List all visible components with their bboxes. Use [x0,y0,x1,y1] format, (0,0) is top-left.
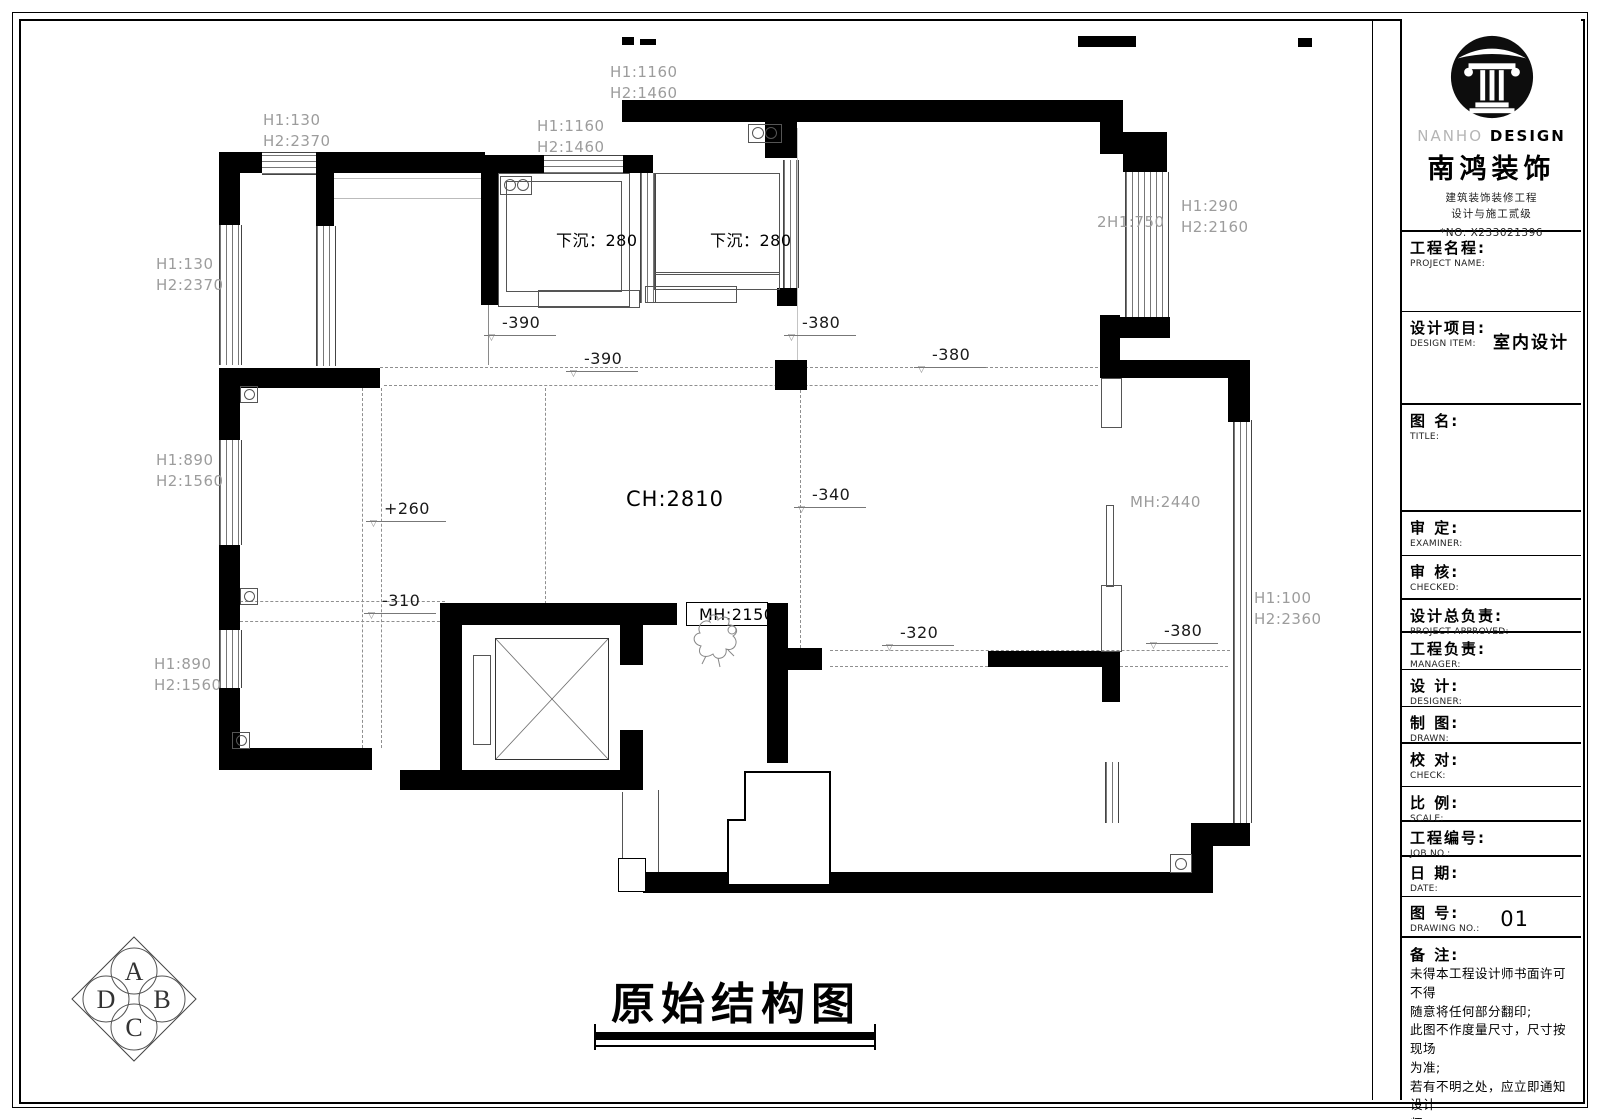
field-value: 室内设计 [1493,328,1569,353]
plan-label: H1:890 H2:1560 [154,654,222,696]
title-block: NANHO DESIGN 南鸿装饰 建筑装饰装修工程设计与施工贰级 *NO: X… [1400,19,1581,1100]
fixture-outline [1101,378,1122,428]
wall [1123,132,1167,172]
floor-plan: H1:1160 H2:1460H1:1160 H2:1460H1:130 H2:… [0,0,1600,1119]
company-name: 南鸿装饰 [1402,147,1581,186]
title-underline-thin [594,1045,876,1047]
notes-label: 备 注: [1410,944,1573,965]
field-label-en: DRAWN: [1410,734,1573,744]
titleblock-field: 比 例:SCALE: [1402,787,1581,822]
titleblock-fields: 工程名程:PROJECT NAME:设计项目:DESIGN ITEM:室内设计图… [1402,232,1581,938]
field-label-en: TITLE: [1410,432,1573,442]
certification-text: 建筑装饰装修工程设计与施工贰级 [1402,191,1581,223]
plan-label: MH:2440 [1130,492,1201,513]
level-annotation: -380 [914,344,986,368]
reference-line [658,790,659,872]
field-label-en: CHECK: [1410,771,1573,781]
plan-label: 下沉：280 [710,230,792,252]
level-annotation: -310 [364,590,436,614]
titleblock-field: 设计总负责:PROJECT APPROVED: [1402,600,1581,633]
title-underline-thick [594,1032,876,1040]
wall [622,37,634,45]
compass-letter-d: D [97,985,116,1014]
wall [219,152,262,173]
field-label-cn: 审 定: [1410,517,1573,538]
wall [1100,122,1123,154]
note-line: 若有不明之处，应立即通知设计 [1410,1078,1573,1116]
reference-line [334,198,483,199]
field-label-cn: 制 图: [1410,712,1573,733]
field-label-cn: 工程名程: [1410,237,1573,258]
wall [767,603,788,763]
titleblock-field: 图 名:TITLE: [1402,405,1581,512]
wall [988,651,1120,667]
field-label-en: CHECKED: [1410,583,1573,593]
field-label-cn: 审 核: [1410,561,1573,582]
wall [219,173,240,225]
wall [1191,846,1213,893]
drawing-title: 原始结构图 [595,968,877,1032]
compass-letter-b: B [153,985,170,1014]
window-hatch [1125,172,1169,317]
plan-label: H1:290 H2:2160 [1181,196,1249,238]
reference-line [334,178,483,179]
level-annotation: -380 [784,312,856,336]
compass-letter-a: A [125,957,144,986]
notes-lines: 未得本工程设计师书面许可不得随意将任何部分翻印;此图不作度量尺寸，尺寸按现场为准… [1410,965,1573,1119]
level-annotation: +260 [366,498,446,522]
wall [640,39,656,45]
compass-letter-c: C [125,1013,142,1042]
wall [620,730,643,790]
beam-dash-line [381,388,382,748]
field-label-cn: 设 计: [1410,675,1573,696]
titleblock-field: 工程名程:PROJECT NAME: [1402,232,1581,312]
window-hatch [1233,420,1252,823]
beam-dash-line [240,621,445,622]
wall [1298,38,1312,47]
door-frame [618,858,646,892]
level-annotation: -380 [1146,620,1218,644]
field-label-en: PROJECT NAME: [1410,259,1573,269]
field-label-en: DESIGNER: [1410,697,1573,707]
wall [777,288,797,306]
titleblock-field: 图 号:DRAWING NO.:01 [1402,897,1581,938]
beam-dash-line [362,388,363,748]
note-line: 为准; [1410,1059,1573,1078]
field-label-cn: 工程负责: [1410,638,1573,659]
plan-label: H1:890 H2:1560 [156,450,224,492]
field-label-cn: 图 名: [1410,410,1573,431]
wall [1100,360,1250,378]
wall [623,155,653,173]
field-value: 01 [1500,907,1529,931]
wall [1191,823,1250,846]
reference-line [622,792,623,858]
company-logo-block: NANHO DESIGN 南鸿装饰 建筑装饰装修工程设计与施工贰级 *NO: X… [1402,19,1581,232]
window-hatch [1105,762,1119,823]
beam-dash-line [545,388,546,604]
plan-label: 2H1:750 [1097,212,1165,233]
plan-label: H1:130 H2:2370 [156,254,224,296]
plan-label: H1:1160 H2:1460 [537,116,605,158]
level-annotation: -390 [566,348,638,372]
titleblock-field: 审 核:CHECKED: [1402,556,1581,600]
wall [481,157,499,305]
window-hatch [219,630,242,688]
note-line: 随意将任何部分翻印; [1410,1003,1573,1022]
plan-label: CH:2810 [626,485,724,514]
beam-dash-line [384,385,1098,386]
titleblock-field: 设 计:DESIGNER: [1402,670,1581,707]
note-line: 此图不作度量尺寸，尺寸按现场 [1410,1021,1573,1059]
wall [400,770,643,790]
fixture-outline [1106,505,1114,587]
titleblock-field: 设计项目:DESIGN ITEM:室内设计 [1402,312,1581,405]
titleblock-field: 工程负责:MANAGER: [1402,633,1581,670]
note-line: 未得本工程设计师书面许可不得 [1410,965,1573,1003]
notes-section: 备 注: 未得本工程设计师书面许可不得随意将任何部分翻印;此图不作度量尺寸，尺寸… [1402,938,1581,1119]
drain-circle-icon [244,389,255,400]
note-line: 师。 [1410,1115,1573,1119]
drain-circle-icon [752,127,764,139]
drawing-sheet: H1:1160 H2:1460H1:1160 H2:1460H1:130 H2:… [0,0,1600,1119]
field-label-cn: 工程编号: [1410,827,1573,848]
drain-circle-icon [1175,858,1187,870]
fixture-outline [645,286,737,303]
window-hatch [783,160,799,288]
wall [1102,651,1120,702]
window-hatch [316,226,336,366]
compass-symbol: A B C D [70,935,198,1063]
field-label-en: EXAMINER: [1410,539,1573,549]
field-label-cn: 比 例: [1410,792,1573,813]
wall [788,648,822,670]
wall [622,100,1123,122]
titleblock-field: 制 图:DRAWN: [1402,707,1581,744]
field-label-en: DATE: [1410,884,1573,894]
drain-circle-icon [517,179,529,191]
wall [219,748,372,770]
brand-name: NANHO DESIGN [1402,127,1581,145]
elevator-shaft [495,638,609,760]
beam-dash-line [380,367,1098,368]
plan-label: 下沉：280 [556,230,638,252]
field-label-cn: 设计总负责: [1410,605,1573,626]
field-label-en: DRAWING NO.: [1410,924,1573,934]
drain-circle-icon [244,591,255,602]
titleblock-field: 工程编号:JOB NO.: [1402,822,1581,857]
plan-label: H1:100 H2:2360 [1254,588,1322,630]
wall [1078,36,1136,47]
wall [316,152,485,173]
field-label-cn: 图 号: [1410,902,1573,923]
wall [440,603,462,770]
titleblock-field: 审 定:EXAMINER: [1402,512,1581,556]
wall [775,360,807,390]
plan-label: H1:1160 H2:1460 [610,62,678,104]
field-label-en: MANAGER: [1410,660,1573,670]
wall [620,603,643,665]
wall [219,368,380,388]
stairs-outline [727,771,831,886]
titleblock-field: 校 对:CHECK: [1402,744,1581,787]
titleblock-separator-line [1372,19,1373,1100]
wall [316,173,334,226]
wall [219,545,240,630]
field-label-cn: 校 对: [1410,749,1573,770]
dog-sketch [688,616,748,672]
fixture-outline [473,655,491,745]
window-hatch [262,152,316,175]
wall [1228,378,1250,422]
level-annotation: -340 [794,484,866,508]
drain-circle-icon [236,735,247,746]
fixture-outline [538,290,640,308]
column-logo-icon [1448,33,1536,121]
drain-circle-icon [765,127,777,139]
brand-bold: DESIGN [1490,127,1566,145]
fixture-outline [654,173,780,275]
drain-circle-icon [504,179,516,191]
field-label-cn: 日 期: [1410,862,1573,883]
level-annotation: -390 [484,312,556,336]
beam-dash-line [800,390,801,648]
brand-light: NANHO [1417,127,1483,145]
titleblock-field: 日 期:DATE: [1402,857,1581,897]
fixture-outline [1101,585,1122,652]
level-annotation: -320 [882,622,954,646]
plan-label: H1:130 H2:2370 [263,110,331,152]
